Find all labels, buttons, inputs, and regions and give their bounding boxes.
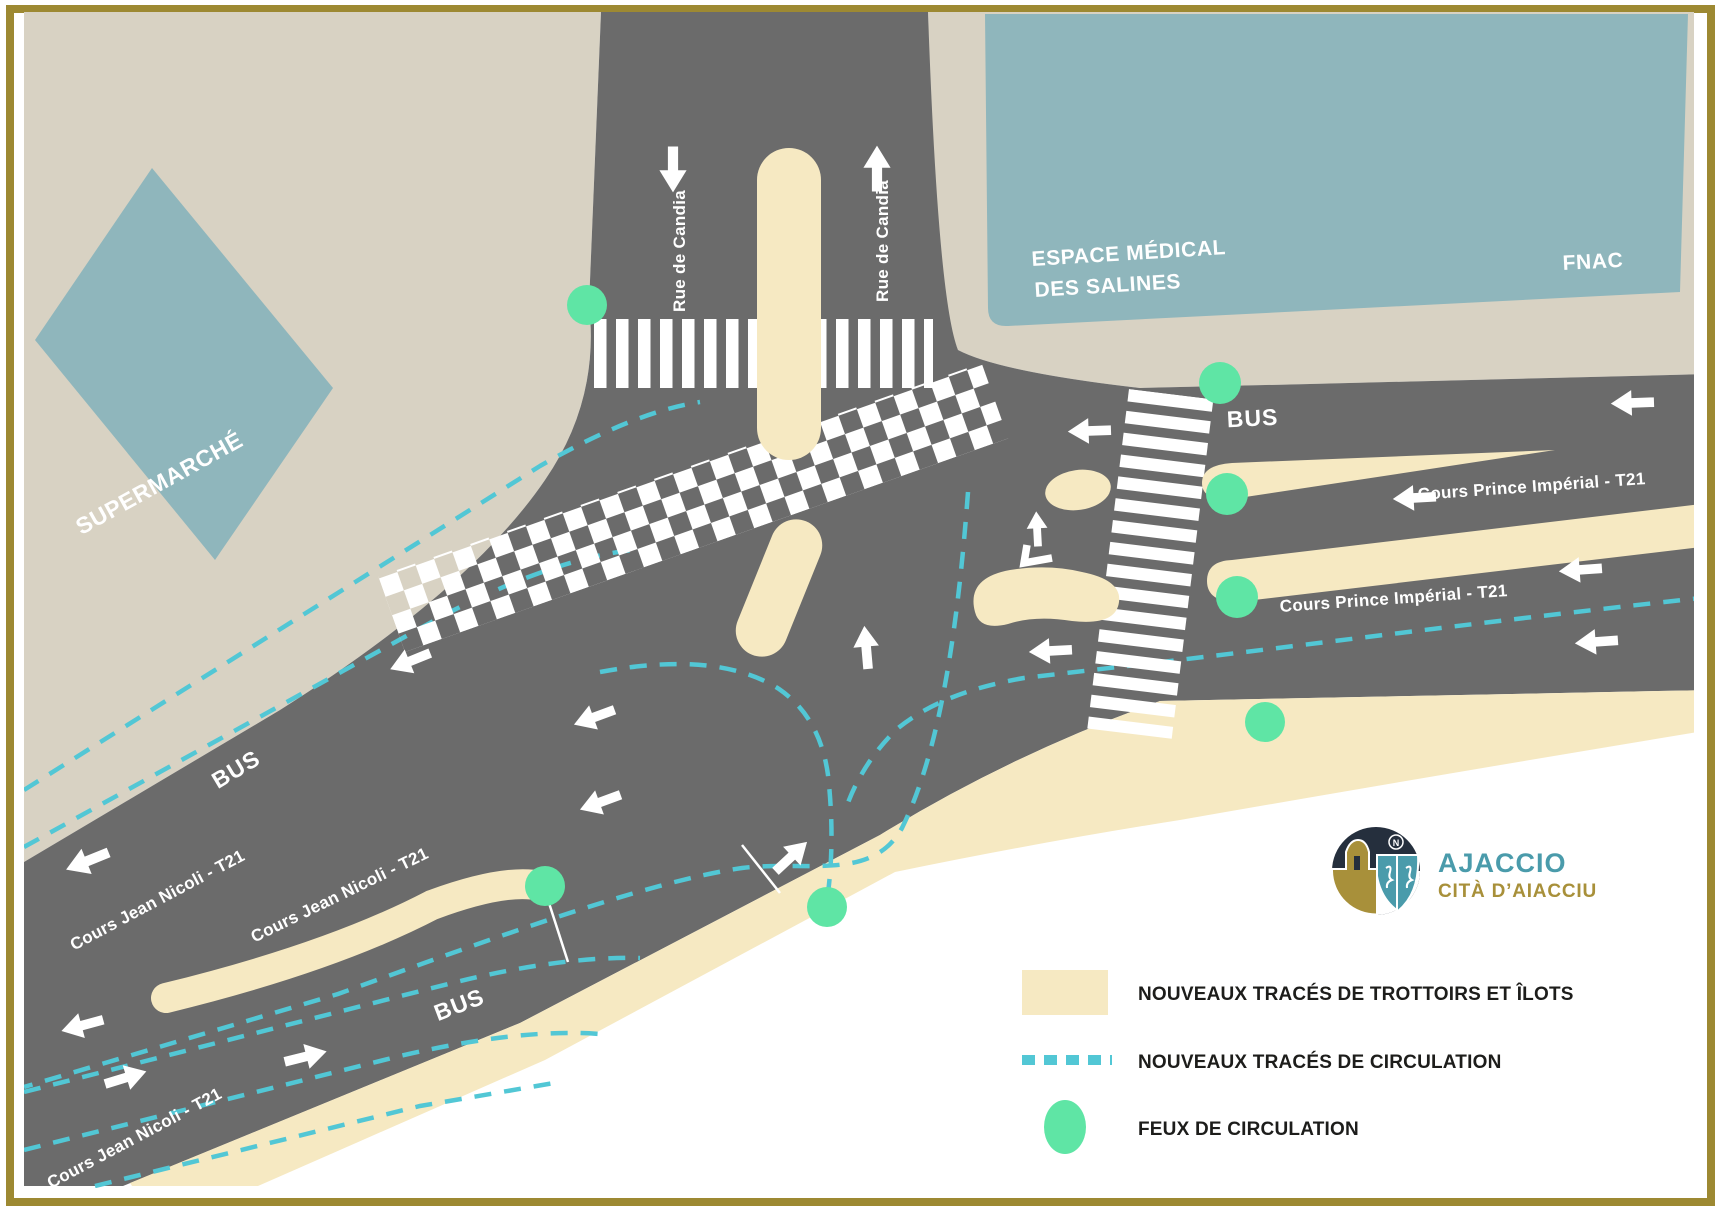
label-rue-de-candia-north: Rue de Candia bbox=[873, 180, 892, 302]
traffic-light-dot bbox=[1245, 702, 1285, 742]
legend-light-label: FEUX DE CIRCULATION bbox=[1138, 1119, 1359, 1140]
label-rue-de-candia-south: Rue de Candia bbox=[670, 190, 689, 312]
traffic-light-dot bbox=[1206, 473, 1248, 515]
map-canvas: SUPERMARCHÉ ESPACE MÉDICAL DES SALINES F… bbox=[0, 0, 1721, 1215]
legend-dashed-label: NOUVEAUX TRACÉS DE CIRCULATION bbox=[1138, 1051, 1502, 1073]
legend-sidewalk-label: NOUVEAUX TRACÉS DE TROTTOIRS ET ÎLOTS bbox=[1138, 983, 1574, 1005]
logo-title: AJACCIO bbox=[1438, 848, 1567, 878]
label-bus-prince-imperial: BUS bbox=[1226, 404, 1279, 433]
traffic-plan-page: SUPERMARCHÉ ESPACE MÉDICAL DES SALINES F… bbox=[0, 0, 1721, 1215]
traffic-light-dot bbox=[1216, 576, 1258, 618]
traffic-light-dot bbox=[807, 887, 847, 927]
logo-compass-n: N bbox=[1393, 838, 1400, 848]
ajaccio-logo: N AJACCIO CITÀ D’AIACCIU bbox=[1332, 827, 1597, 915]
legend-light-swatch bbox=[1044, 1100, 1086, 1154]
traffic-light-dot bbox=[1199, 362, 1241, 404]
island-blob-large bbox=[973, 567, 1119, 625]
traffic-light-dot bbox=[525, 866, 565, 906]
traffic-light-dot bbox=[567, 285, 607, 325]
legend: NOUVEAUX TRACÉS DE TROTTOIRS ET ÎLOTS NO… bbox=[1022, 970, 1574, 1154]
island-candia-median bbox=[757, 148, 821, 460]
label-fnac: FNAC bbox=[1562, 249, 1624, 275]
logo-citadel-window bbox=[1354, 856, 1360, 870]
logo-subtitle: CITÀ D’AIACCIU bbox=[1438, 880, 1597, 902]
legend-sidewalk-swatch bbox=[1022, 970, 1108, 1015]
